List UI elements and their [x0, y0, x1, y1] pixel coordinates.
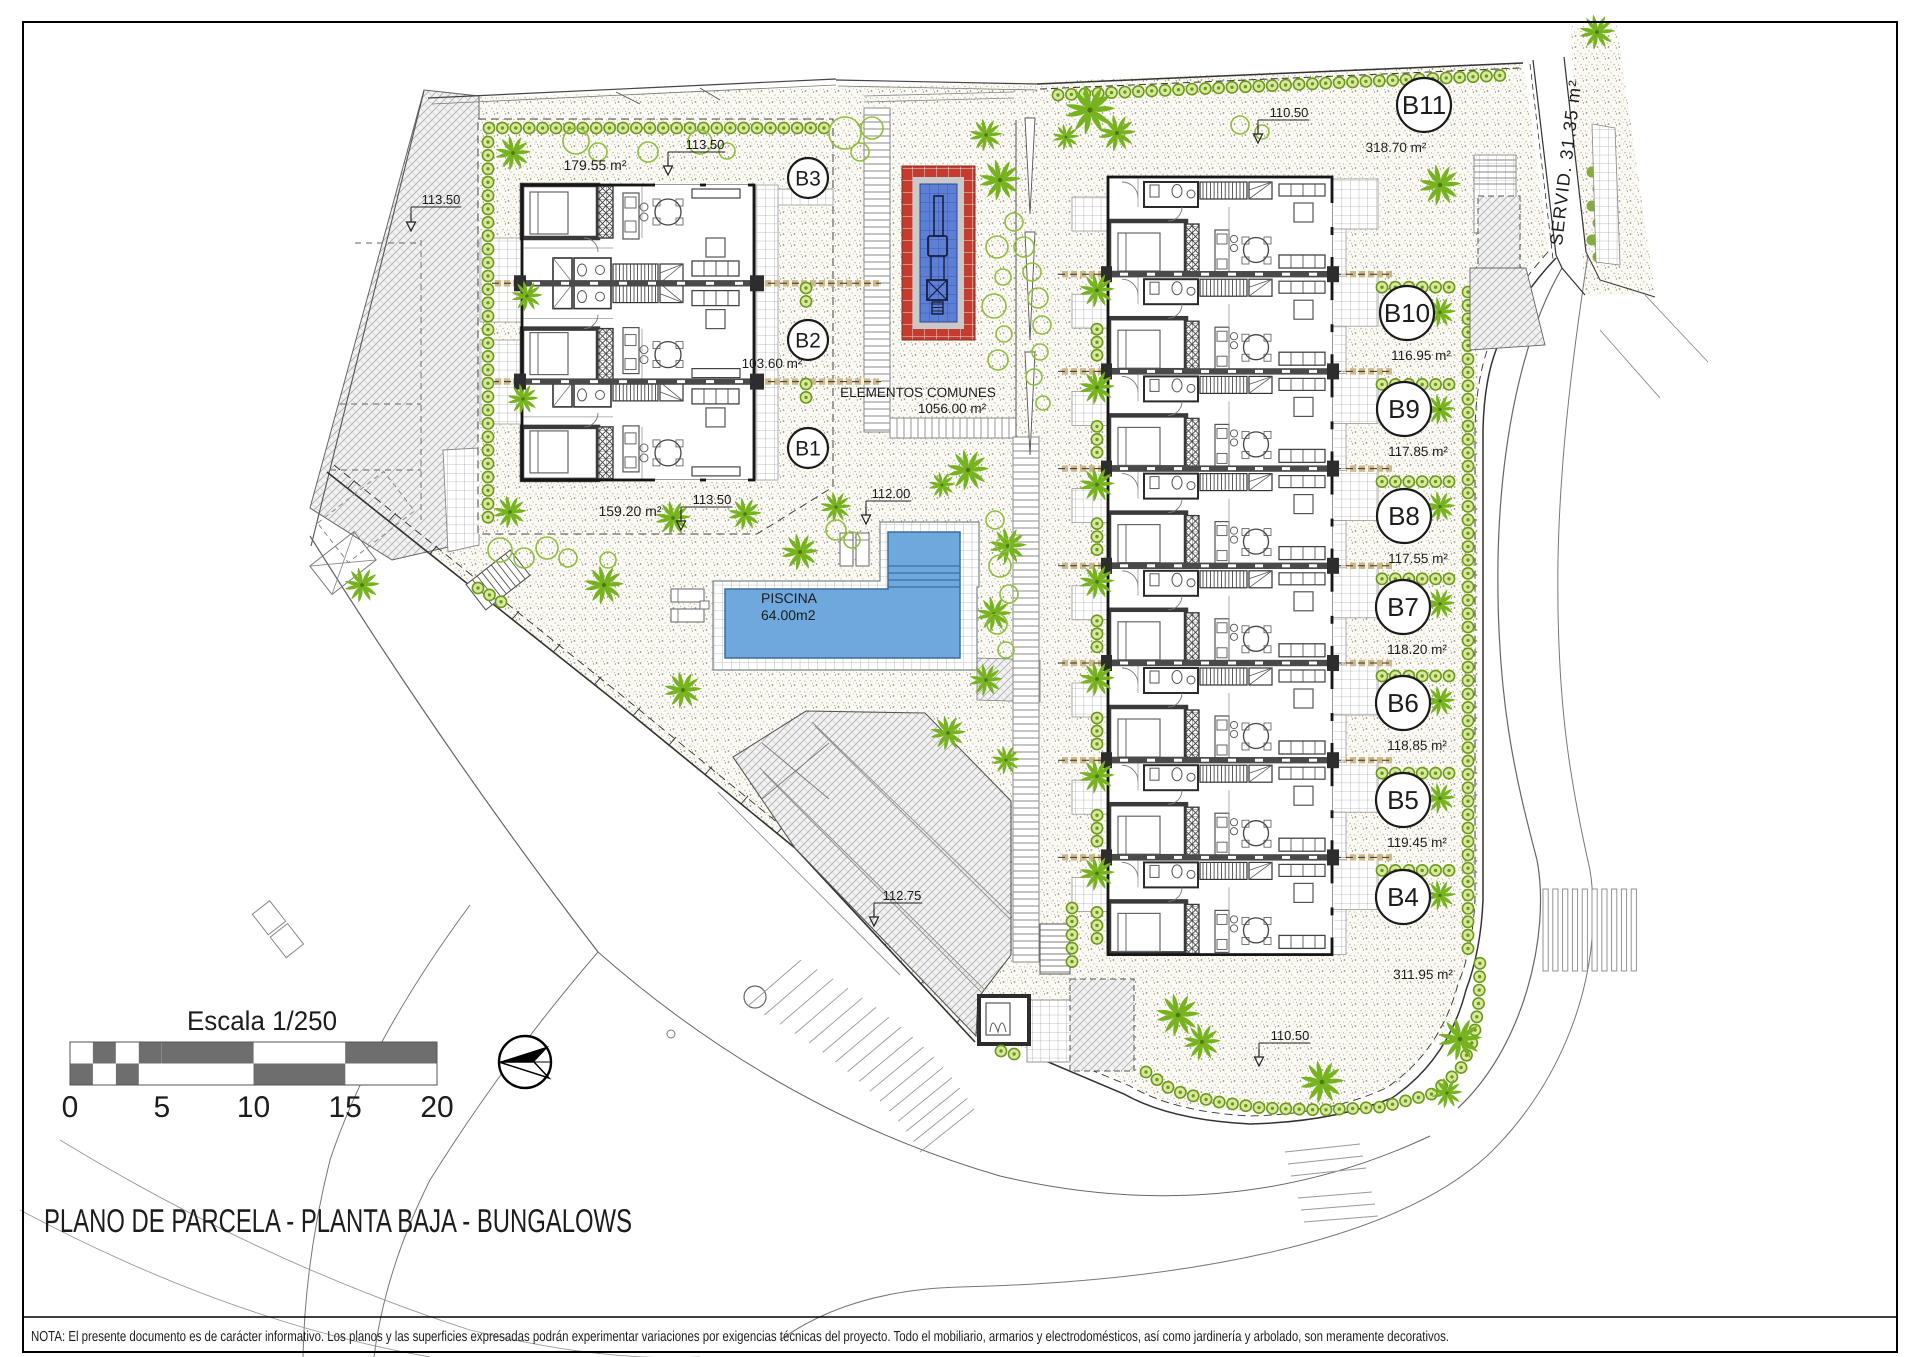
svg-text:B4: B4: [1387, 882, 1419, 912]
svg-text:15: 15: [329, 1091, 362, 1124]
svg-text:110.50: 110.50: [1270, 105, 1309, 120]
svg-text:ELEMENTOS COMUNES: ELEMENTOS COMUNES: [840, 385, 996, 400]
svg-text:PLANO DE PARCELA - PLANTA BAJA: PLANO DE PARCELA - PLANTA BAJA - BUNGALO…: [44, 1202, 632, 1239]
svg-text:117.85 m²: 117.85 m²: [1388, 444, 1448, 459]
svg-text:110.50: 110.50: [1271, 1028, 1310, 1043]
svg-text:B6: B6: [1387, 688, 1419, 718]
svg-text:B7: B7: [1387, 592, 1419, 622]
svg-text:113.50: 113.50: [422, 192, 461, 207]
svg-text:B2: B2: [795, 329, 821, 352]
svg-text:B9: B9: [1388, 394, 1420, 424]
svg-text:NOTA: El presente documento es: NOTA: El presente documento es de caráct…: [31, 1329, 1449, 1345]
svg-text:119.45 m²: 119.45 m²: [1387, 835, 1447, 850]
svg-text:179.55 m²: 179.55 m²: [563, 157, 626, 173]
svg-text:B8: B8: [1388, 501, 1420, 531]
svg-text:B3: B3: [795, 167, 821, 190]
svg-text:116.95 m²: 116.95 m²: [1391, 348, 1451, 363]
svg-text:B1: B1: [795, 437, 821, 460]
svg-text:Escala 1/250: Escala 1/250: [187, 1006, 337, 1036]
svg-text:5: 5: [153, 1091, 170, 1124]
svg-text:112.00: 112.00: [872, 486, 911, 501]
svg-text:B11: B11: [1402, 90, 1446, 120]
svg-text:B10: B10: [1384, 298, 1430, 328]
svg-text:118.85 m²: 118.85 m²: [1387, 738, 1447, 753]
svg-text:112.75: 112.75: [883, 888, 922, 903]
svg-text:318.70 m²: 318.70 m²: [1366, 140, 1427, 155]
svg-text:1056.00 m²: 1056.00 m²: [918, 401, 987, 416]
svg-text:PISCINA: PISCINA: [761, 590, 818, 606]
svg-text:118.20 m²: 118.20 m²: [1387, 642, 1447, 657]
svg-text:103.60 m²: 103.60 m²: [742, 356, 803, 371]
svg-text:113.50: 113.50: [686, 137, 725, 152]
svg-text:B5: B5: [1387, 785, 1419, 815]
svg-text:20: 20: [420, 1091, 453, 1124]
svg-text:117.55 m²: 117.55 m²: [1388, 551, 1448, 566]
svg-text:159.20 m²: 159.20 m²: [598, 503, 661, 519]
svg-text:0: 0: [62, 1091, 79, 1124]
svg-text:10: 10: [237, 1091, 270, 1124]
svg-text:64.00m2: 64.00m2: [761, 607, 816, 623]
svg-text:311.95 m²: 311.95 m²: [1393, 967, 1453, 982]
svg-text:113.50: 113.50: [693, 492, 732, 507]
